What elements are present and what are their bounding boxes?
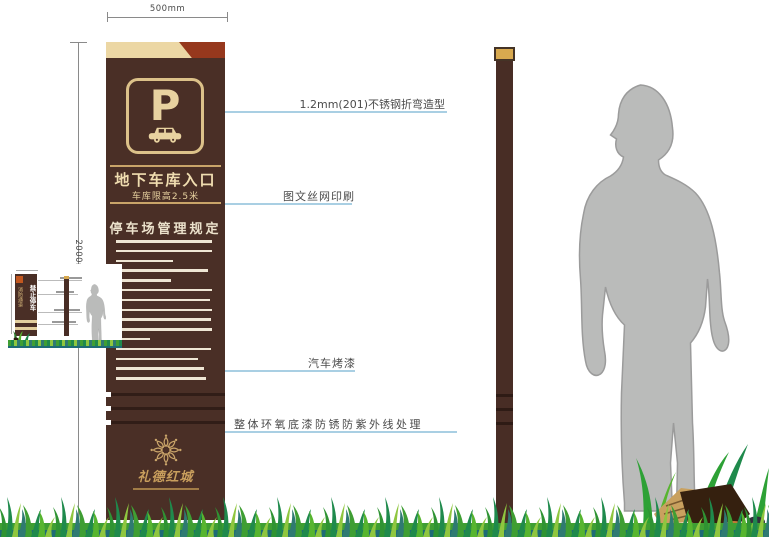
rule-text-line: [116, 279, 171, 282]
dimension-tick: [107, 12, 108, 22]
rule-text-line: [116, 367, 204, 370]
thumb-sign-text-right: 禁止停车: [29, 285, 36, 311]
post-cap: [494, 47, 515, 61]
rule-text-line: [116, 250, 212, 253]
context-thumbnail: 禁止停车 消防通道: [8, 264, 122, 348]
rule-text-line: [116, 260, 173, 263]
annotation-primer: 整体环氧底漆防锈防紫外线处理: [234, 416, 423, 432]
thumb-dim-line: [16, 270, 38, 271]
width-dimension-line: [107, 17, 228, 18]
groove-line: [106, 393, 225, 396]
post-body: [496, 61, 513, 524]
rule-text-line: [116, 328, 212, 331]
entrance-subtitle: 车库限高2.5米: [106, 189, 225, 202]
rules-title: 停车场管理规定: [106, 218, 225, 237]
annotation-steel: 1.2mm(201)不锈钢折弯造型: [273, 96, 445, 112]
medallion-logo-icon: [150, 434, 182, 466]
parking-letter: P: [150, 87, 181, 125]
thumb-dim-line: [11, 274, 12, 334]
sign-front-view: P 地下车库入口 车库限高2.5米 停车场管理规定: [106, 42, 225, 520]
rule-text-line: [116, 348, 211, 351]
grass-strip: [0, 487, 769, 537]
groove-tick: [105, 406, 111, 411]
thumb-leader-line: [38, 312, 82, 313]
parking-symbol-box: P: [126, 78, 204, 154]
groove-line: [106, 407, 225, 410]
dimension-tick: [70, 42, 87, 43]
thumb-leader-line: [38, 324, 78, 325]
groove-line: [496, 408, 513, 411]
rule-text-line: [116, 358, 198, 361]
groove-line: [496, 394, 513, 397]
thumb-leader-line: [38, 280, 82, 281]
divider: [110, 165, 221, 167]
width-dimension-label: 500mm: [107, 4, 228, 14]
design-canvas: 500mm 2000mm 1.2mm(201)不锈钢折弯造型 图文丝网印刷 汽车…: [0, 0, 769, 537]
thumb-sign-logo: [16, 276, 23, 283]
annotation-paint: 汽车烤漆: [308, 355, 356, 371]
rule-text-line: [116, 377, 206, 380]
rule-text-line: [116, 269, 208, 272]
annotation-print: 图文丝网印刷: [283, 188, 355, 204]
rule-text-line: [116, 289, 212, 292]
logo-calligraphy: 礼德红城: [106, 466, 225, 485]
entrance-title: 地下车库入口: [106, 169, 225, 190]
sign-top-band: [106, 42, 225, 58]
thumb-post: [64, 276, 69, 336]
thumb-base-tuft: [12, 330, 40, 340]
groove-line: [106, 421, 225, 424]
thumb-leader-line: [38, 294, 78, 295]
car-icon: [147, 125, 183, 143]
groove-line: [496, 422, 513, 425]
thumb-post-cap: [64, 276, 69, 279]
rule-text-line: [116, 309, 212, 312]
rule-text-line: [116, 240, 212, 243]
thumb-sign-text-left: 消防通道: [17, 287, 22, 307]
groove-tick: [105, 420, 111, 425]
thumb-grass-base: [8, 346, 122, 348]
rule-text-line: [116, 318, 211, 321]
sign-band-accent: [179, 42, 225, 58]
groove-tick: [105, 392, 111, 397]
divider: [110, 202, 221, 204]
dimension-tick: [227, 12, 228, 22]
thumb-human-silhouette: [86, 284, 106, 341]
rules-text-lines: [116, 240, 216, 387]
thumb-sign: 禁止停车 消防通道: [15, 274, 37, 336]
rule-text-line: [116, 299, 210, 302]
thumb-plinth-band: [15, 320, 37, 323]
sign-side-view: [494, 47, 515, 524]
